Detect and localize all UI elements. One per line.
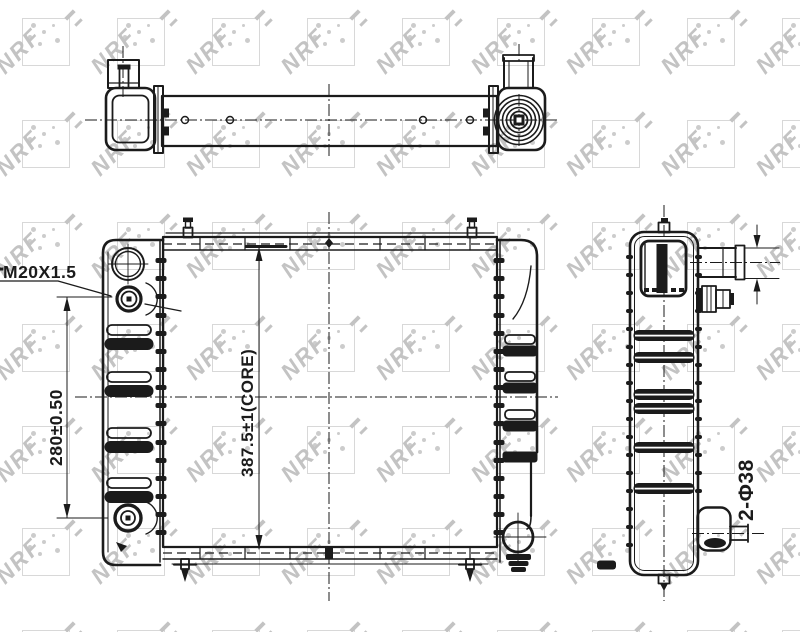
- pipe-diameter-label: 2-Φ38: [735, 459, 758, 521]
- pipe-diameter-dimension: 2-Φ38: [735, 225, 779, 521]
- top-outlet-pipe: [690, 246, 780, 280]
- radiator-front-view: [75, 212, 558, 601]
- hose-nipple: [696, 286, 734, 312]
- radiator-core: [160, 233, 500, 564]
- top-view-left-bracket: [106, 60, 169, 153]
- bottom-mounting-pins: [174, 559, 481, 582]
- left-tank: [103, 240, 163, 565]
- lower-thread-port: [115, 502, 157, 552]
- height-dimension-label: 280±0.50: [46, 389, 66, 466]
- top-view-filler-neck: [483, 55, 545, 153]
- radiator-side-view: [597, 205, 780, 601]
- top-mounting-pins: [183, 218, 477, 238]
- m20-thread-port: [117, 287, 141, 311]
- technical-drawing-canvas: NRFNRFNRFNRFNRFNRFNRFNRFNRFNRFNRFNRFNRFN…: [0, 0, 800, 632]
- core-dimension-label: 387.5±1(CORE): [238, 349, 257, 477]
- radiator-top-view: [85, 44, 558, 158]
- radiator-engineering-drawing: M20X1.5 280±0.50 387.5±1(CORE): [0, 0, 800, 632]
- thread-size-label: M20X1.5: [3, 262, 77, 282]
- thread-callout: M20X1.5: [0, 262, 181, 311]
- core-dimension: 387.5±1(CORE): [238, 247, 286, 550]
- bottom-outlet: [494, 513, 546, 572]
- side-mount-tab: [597, 561, 616, 570]
